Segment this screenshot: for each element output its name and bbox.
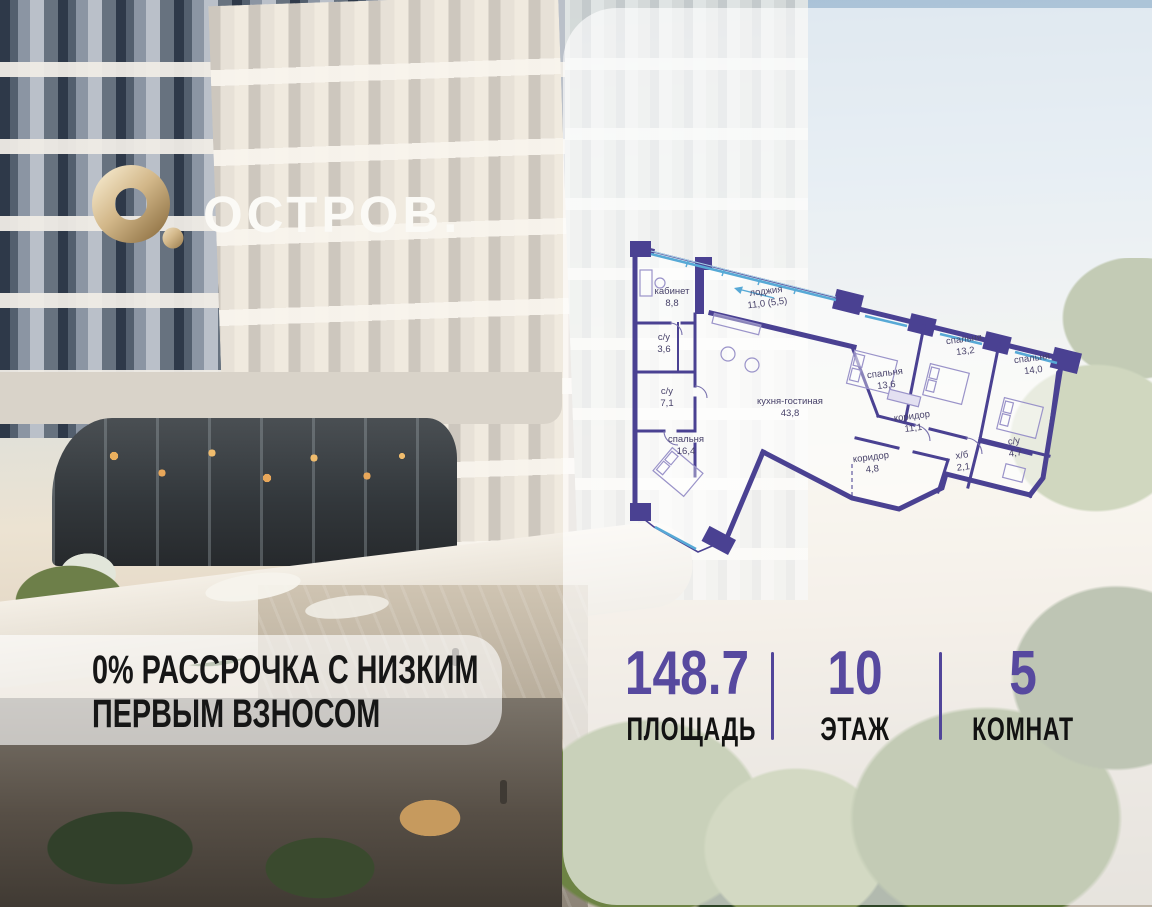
stat-floor-value: 10 <box>788 644 922 704</box>
room-area: 14,0 <box>1024 364 1044 377</box>
room-label: с/у <box>658 332 670 343</box>
brand-wordmark: ОСТРОВ. <box>203 185 461 244</box>
stats-row: 148.7 ПЛОЩАДЬ 10 ЭТАЖ 5 КОМНАТ <box>603 642 1107 754</box>
room-area: 7,1 <box>660 398 673 409</box>
stat-area-value: 148.7 <box>620 644 754 704</box>
stat-rooms-label: КОМНАТ <box>963 712 1084 746</box>
stat-floor: 10 ЭТАЖ <box>771 642 939 754</box>
room-area: 2,1 <box>956 461 970 474</box>
promo-line-1: 0% РАССРОЧКА С НИЗКИМ <box>92 648 478 692</box>
room-label: спальня <box>668 434 704 445</box>
room-area: 8,8 <box>665 298 678 309</box>
floorplan: кабинет 8,8 лоджия 11,0 (5,5) с/у 3,6 с/… <box>616 226 1096 571</box>
logo-ring-icon <box>86 158 186 258</box>
stat-rooms-value: 5 <box>956 644 1090 704</box>
promo-headline: 0% РАССРОЧКА С НИЗКИМ ПЕРВЫМ ВЗНОСОМ <box>92 648 629 736</box>
room-area: 3,6 <box>657 344 670 355</box>
room-area: 16,4 <box>677 446 696 457</box>
stat-area-label: ПЛОЩАДЬ <box>627 712 748 746</box>
room-label: кухня-гостиная <box>757 396 823 407</box>
room-area: 4,7 <box>1008 447 1022 460</box>
room-area: 13,2 <box>956 345 976 358</box>
room-area: 4,8 <box>865 463 879 476</box>
room-area: 13,6 <box>877 379 897 392</box>
stat-area: 148.7 ПЛОЩАДЬ <box>603 642 771 754</box>
room-label: с/у <box>1007 435 1021 447</box>
stat-floor-label: ЭТАЖ <box>795 712 916 746</box>
stats-divider <box>771 652 774 740</box>
promo-line-2: ПЕРВЫМ ВЗНОСОМ <box>92 692 478 736</box>
room-area: 43,8 <box>781 408 800 419</box>
stat-rooms: 5 КОМНАТ <box>939 642 1107 754</box>
banner-canvas: ОСТРОВ. <box>0 0 1152 907</box>
room-label: кабинет <box>655 286 691 297</box>
room-area: 11,1 <box>904 422 923 435</box>
room-label: с/у <box>661 386 673 397</box>
photo-person <box>500 780 507 804</box>
photo-facade-band <box>0 372 562 424</box>
room-label: х/б <box>955 449 970 462</box>
stats-divider <box>939 652 942 740</box>
